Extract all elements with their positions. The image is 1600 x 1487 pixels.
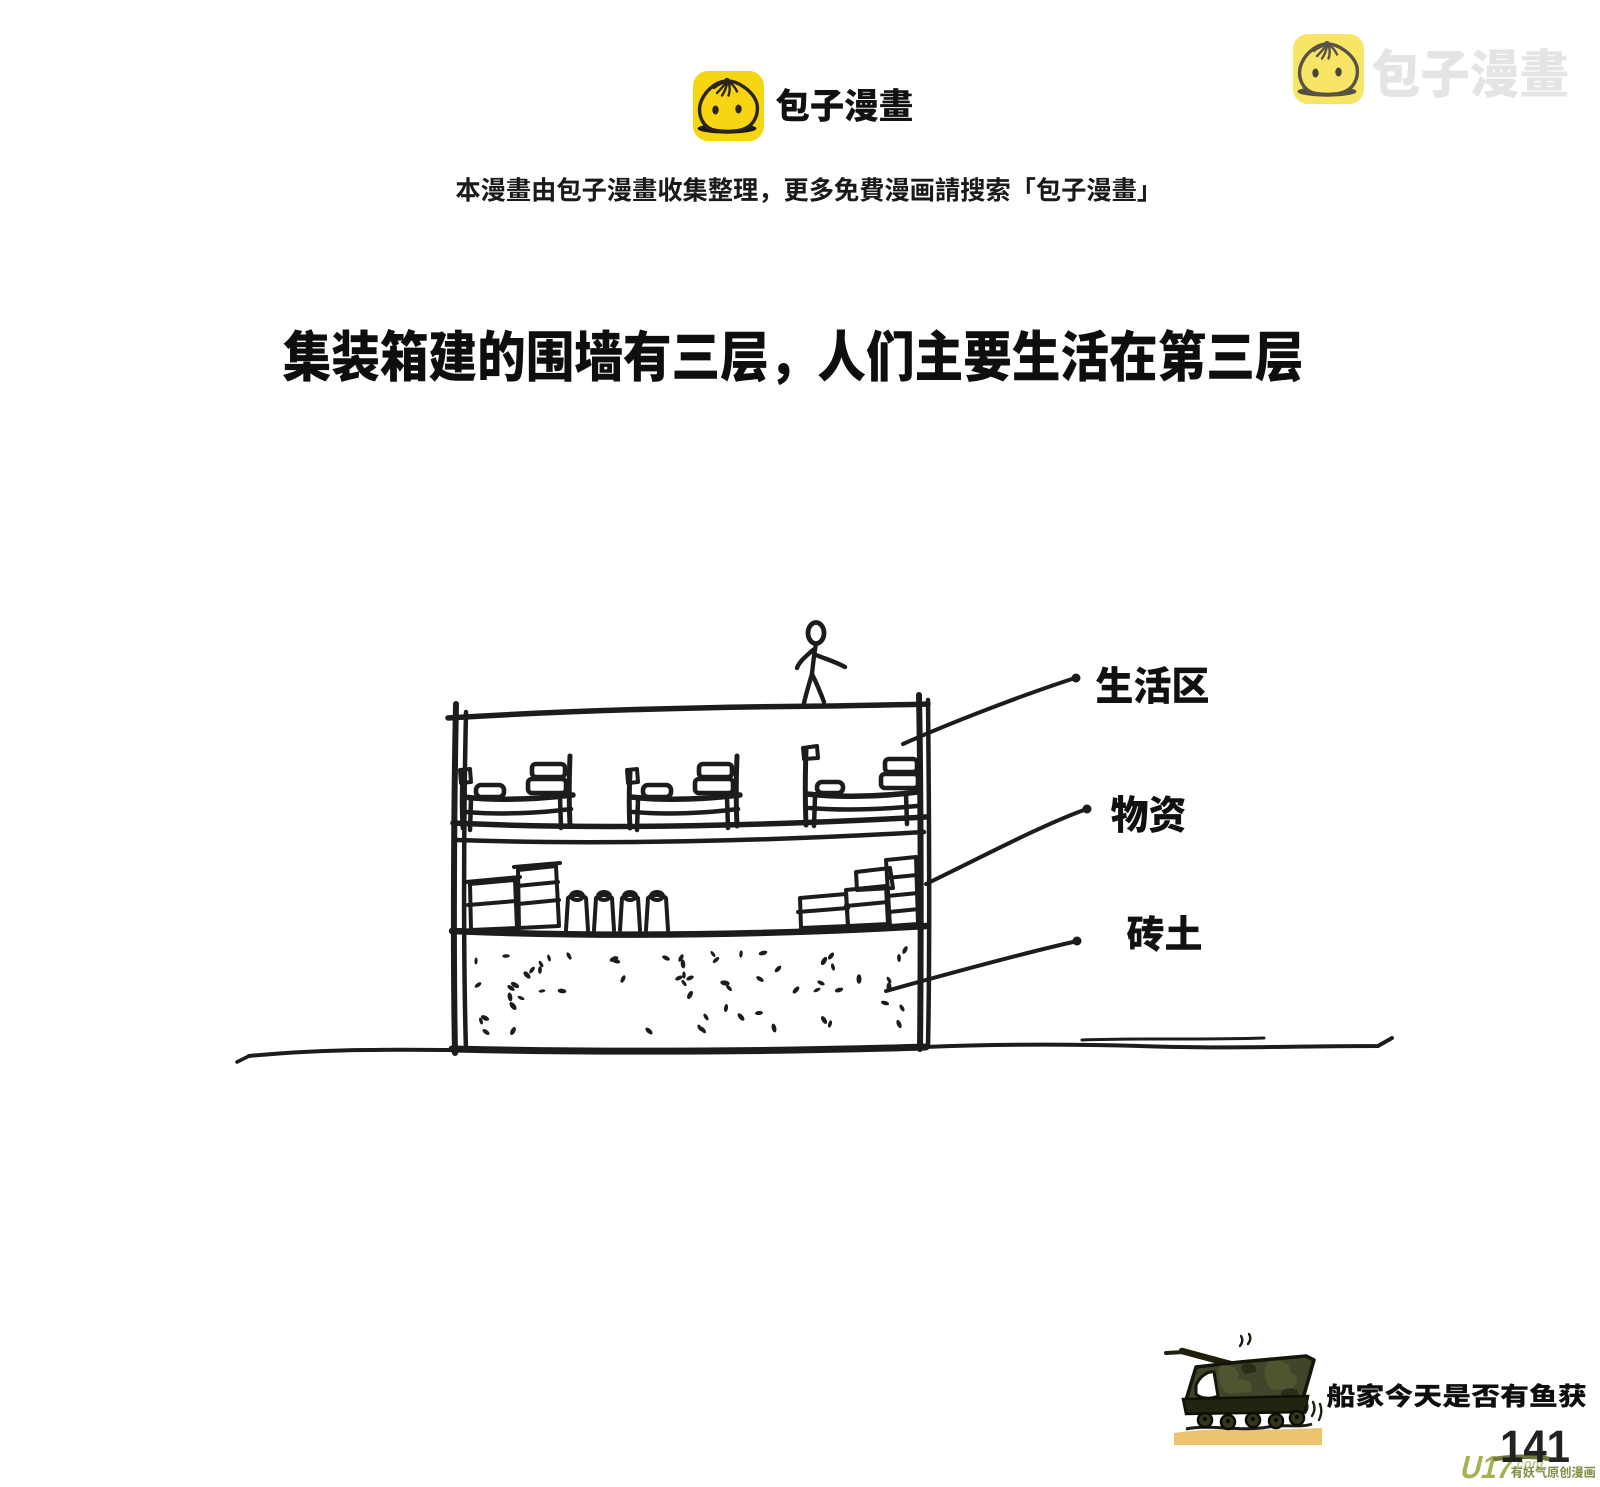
svg-text:141: 141: [1500, 1421, 1570, 1472]
